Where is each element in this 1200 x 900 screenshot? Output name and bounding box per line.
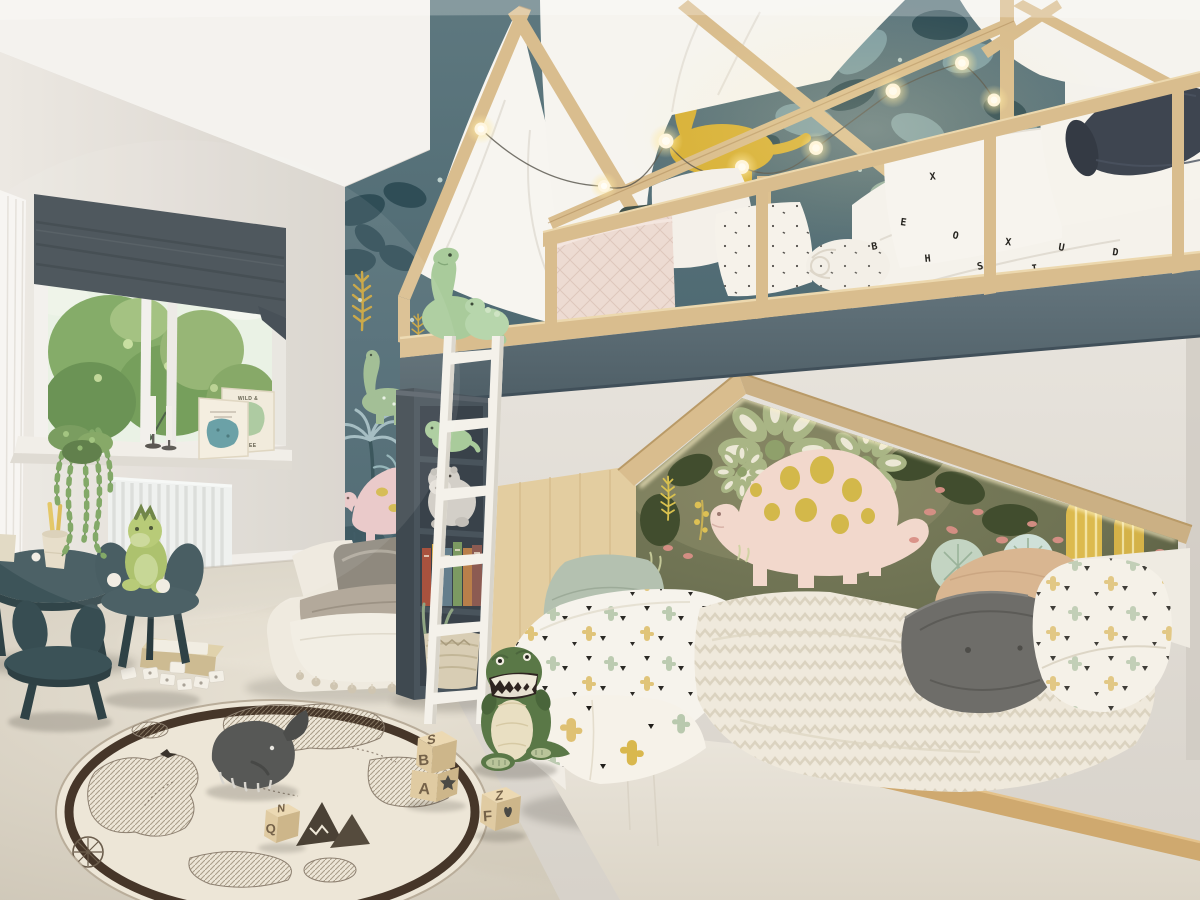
block-letter: Z	[495, 787, 504, 804]
block-letter: F	[483, 808, 493, 826]
bed-side-panel-edge	[1186, 336, 1200, 760]
bedroom-render: WILD & FREE	[0, 0, 1200, 900]
bed-letter: X	[1005, 237, 1012, 248]
block-letter: N	[277, 802, 285, 815]
block-letter: B	[418, 752, 430, 770]
pillow-cactus-white	[1033, 558, 1172, 712]
scene-canvas: WILD & FREE	[0, 0, 1200, 900]
bed-letter: X	[929, 171, 936, 183]
bed-letter: H	[924, 253, 931, 265]
block-letter: S	[426, 731, 436, 748]
block-letter: A	[418, 781, 431, 799]
block-letter: Q	[265, 821, 276, 837]
